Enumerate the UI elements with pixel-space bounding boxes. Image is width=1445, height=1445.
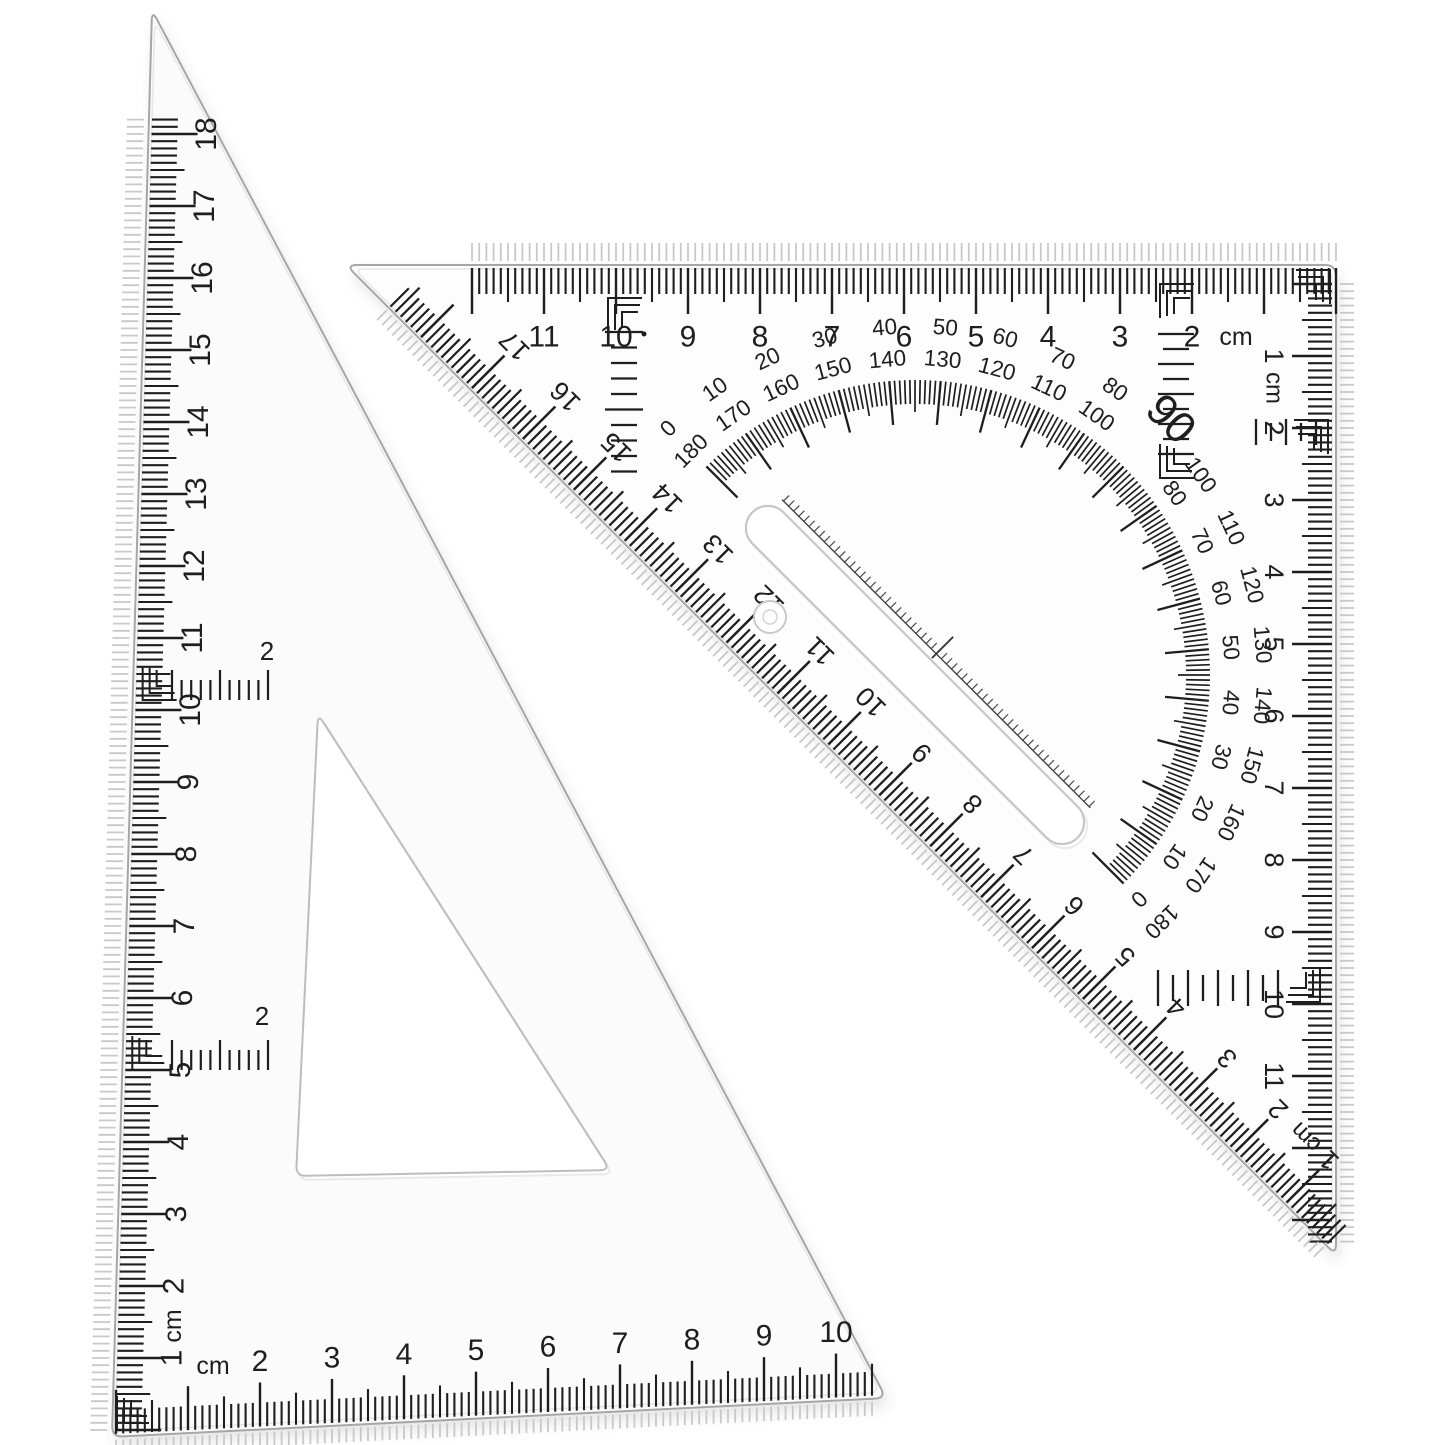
tick-ghost (586, 519, 596, 529)
tick-ghost (479, 412, 489, 422)
tick-ghost (759, 692, 769, 702)
tick-ghost (784, 717, 794, 727)
tick-ghost (820, 753, 830, 763)
top-scale-number: 3 (1112, 321, 1129, 354)
tick-ghost (1003, 936, 1013, 946)
tick-ghost (453, 387, 463, 397)
tick-ghost (540, 473, 550, 483)
tick-ghost (810, 743, 820, 753)
tick-ghost (1069, 1003, 1079, 1013)
tick-ghost (484, 417, 494, 427)
hang-hole-inner (763, 610, 777, 624)
bottom-scale-number: 4 (396, 1338, 413, 1371)
right-scale-number: 9 (1259, 924, 1289, 939)
tick-ghost (774, 707, 784, 717)
tick-ghost (1166, 1099, 1176, 1109)
tick-ghost (1156, 1089, 1166, 1099)
protractor-outer-degree: 130 (1249, 625, 1277, 665)
tick-ghost (474, 407, 484, 417)
tick-ghost (723, 656, 733, 666)
tick-ghost (1019, 952, 1029, 962)
tick-ghost (642, 575, 652, 585)
tick-ghost (606, 539, 616, 549)
right-scale-number: 3 (1259, 492, 1289, 507)
tick-ghost (881, 814, 891, 824)
bottom-scale-number: 5 (468, 1334, 485, 1367)
bottom-scale-number: 10 (819, 1316, 852, 1349)
tick-ghost (917, 850, 927, 860)
tick-ghost (1059, 992, 1069, 1002)
degree-tick (905, 380, 906, 404)
tick-ghost (402, 336, 412, 346)
tick-ghost (932, 865, 942, 875)
tick-ghost (530, 463, 540, 473)
tick-ghost (1258, 1191, 1268, 1201)
tick-ghost (1237, 1171, 1247, 1181)
tick-ghost (1100, 1033, 1110, 1043)
tick-ghost (1115, 1048, 1125, 1058)
tick-ghost (494, 427, 504, 437)
bottom-scale-number: 7 (612, 1327, 629, 1360)
left-scale-number: 6 (166, 990, 199, 1007)
tick-ghost (392, 325, 402, 335)
tick-ghost (942, 875, 952, 885)
tick-ghost (993, 926, 1003, 936)
tick-ghost (1008, 941, 1018, 951)
tick-ghost (1161, 1094, 1171, 1104)
left-scale-number: 2 (158, 1278, 191, 1295)
protractor-inner-degree: 40 (1217, 689, 1244, 716)
tick-ghost (1034, 967, 1044, 977)
tick-ghost (433, 366, 443, 376)
left-scale-number: 3 (160, 1206, 193, 1223)
protractor-inner-degree: 140 (868, 345, 908, 373)
tick-ghost (682, 616, 692, 626)
tick-ghost (998, 931, 1008, 941)
tick-ghost (535, 468, 545, 478)
tick-ghost (973, 906, 983, 916)
tick-ghost (499, 432, 509, 442)
tick-ghost (1120, 1053, 1130, 1063)
left-scale-number: 17 (188, 189, 221, 222)
tick-ghost (509, 443, 519, 453)
bottom-scale-number: 3 (324, 1341, 341, 1374)
tick-ghost (693, 626, 703, 636)
tick-ghost (443, 376, 453, 386)
tick-ghost (764, 697, 774, 707)
tick-ghost (688, 621, 698, 631)
right-scale-number: 1 (1259, 348, 1289, 363)
tick-ghost (1075, 1008, 1085, 1018)
tick-ghost (1151, 1084, 1161, 1094)
top-scale-number: 9 (680, 321, 697, 354)
right-scale-number: 8 (1259, 852, 1289, 867)
tick-ghost (621, 555, 631, 565)
tick-ghost (922, 855, 932, 865)
tick-ghost (570, 504, 580, 514)
tick-ghost (805, 738, 815, 748)
tick-ghost (1288, 1221, 1298, 1231)
tick-ghost (1049, 982, 1059, 992)
tick-ghost (901, 835, 911, 845)
right-scale-number: 2 (1259, 420, 1289, 435)
tick-ghost (657, 590, 667, 600)
bottom-scale-number: 2 (252, 1345, 269, 1378)
protractor-outer-degree: 50 (932, 314, 959, 341)
tick-ghost (728, 661, 738, 671)
tick-ghost (1013, 947, 1023, 957)
tick-ghost (1283, 1216, 1293, 1226)
tick-ghost (1146, 1079, 1156, 1089)
left-triangle-ruler: 123456789101112131415161718cm2345678910c… (90, 15, 882, 1445)
tick-ghost (1044, 977, 1054, 987)
tick-ghost (652, 585, 662, 595)
tick-ghost (1299, 1232, 1309, 1242)
tick-ghost (1064, 997, 1074, 1007)
tick-ghost (739, 672, 749, 682)
protractor-inner-degree: 50 (1217, 634, 1244, 661)
tick-ghost (871, 804, 881, 814)
tick-ghost (1187, 1120, 1197, 1130)
tick-ghost (576, 509, 586, 519)
tick-ghost (769, 702, 779, 712)
tick-ghost (1217, 1150, 1227, 1160)
tick-ghost (413, 346, 423, 356)
tick-ghost (1131, 1064, 1141, 1074)
tick-ghost (856, 789, 866, 799)
tick-ghost (616, 549, 626, 559)
tick-ghost (1029, 962, 1039, 972)
right-scale-unit: cm (1261, 372, 1288, 404)
tick-ghost (988, 921, 998, 931)
tick-ghost (458, 392, 468, 402)
tick-ghost (1222, 1155, 1232, 1165)
tick-ghost (1125, 1059, 1135, 1069)
left-scale-number: 11 (176, 622, 209, 653)
tick-ghost (525, 458, 535, 468)
tick-ghost (677, 611, 687, 621)
tick-ghost (489, 422, 499, 432)
right-scale-number: 7 (1259, 780, 1289, 795)
aux-label: 2 (260, 636, 274, 666)
top-scale-number: 5 (968, 321, 985, 354)
bottom-scale-number: 9 (756, 1320, 773, 1353)
tick-ghost (596, 529, 606, 539)
tick-ghost (1090, 1023, 1100, 1033)
left-scale-number: 12 (178, 549, 211, 582)
tick-ghost (825, 758, 835, 768)
left-scale-number: 8 (170, 846, 203, 863)
left-scale-number: 18 (190, 117, 223, 150)
set-squares-scene: 123456789101112131415161718cm2345678910c… (0, 0, 1445, 1445)
tick-ghost (591, 524, 601, 534)
tick-ghost (1197, 1130, 1207, 1140)
tick-ghost (912, 845, 922, 855)
tick-ghost (815, 748, 825, 758)
tick-ghost (1207, 1140, 1217, 1150)
tick-ghost (611, 544, 621, 554)
tick-ghost (448, 381, 458, 391)
degree-tick (924, 380, 925, 404)
tick-ghost (896, 829, 906, 839)
tick-ghost (565, 499, 575, 509)
tick-ghost (983, 916, 993, 926)
left-scale-number: 7 (168, 918, 201, 935)
aux-label: 2 (255, 1001, 269, 1031)
tick-ghost (1095, 1028, 1105, 1038)
tick-ghost (1141, 1074, 1151, 1084)
tick-ghost (876, 809, 886, 819)
tick-ghost (555, 488, 565, 498)
tick-ghost (632, 565, 642, 575)
tick-ghost (672, 605, 682, 615)
tick-ghost (851, 784, 861, 794)
tick-ghost (1054, 987, 1064, 997)
left-scale-unit: cm (159, 1309, 187, 1342)
tick-ghost (1105, 1038, 1115, 1048)
tick-ghost (662, 595, 672, 605)
tick-ghost (1212, 1145, 1222, 1155)
protractor-outer-degree: 40 (871, 314, 898, 341)
tick-ghost (978, 911, 988, 921)
tick-ghost (891, 824, 901, 834)
tick-ghost (408, 341, 418, 351)
tick-ghost (464, 397, 474, 407)
tick-ghost (1202, 1135, 1212, 1145)
tick-ghost (637, 570, 647, 580)
tick-ghost (968, 901, 978, 911)
tick-ghost (927, 860, 937, 870)
tick-ghost (861, 794, 871, 804)
photo-of-two-set-squares: 123456789101112131415161718cm2345678910c… (0, 0, 1445, 1445)
left-triangle-body (112, 15, 882, 1436)
tick-ghost (1181, 1115, 1191, 1125)
tick-ghost (937, 870, 947, 880)
tick-ghost (387, 320, 397, 330)
left-scale-number: 4 (162, 1134, 195, 1151)
tick-ghost (963, 896, 973, 906)
tick-ghost (1273, 1206, 1283, 1216)
tick-ghost (698, 631, 708, 641)
tick-ghost (418, 351, 428, 361)
tick-ghost (779, 712, 789, 722)
right-scale-number: 11 (1259, 1062, 1289, 1090)
tick-ghost (601, 534, 611, 544)
tick-ghost (835, 768, 845, 778)
degree-tick (1186, 684, 1210, 685)
tick-ghost (1232, 1165, 1242, 1175)
tick-ghost (1248, 1181, 1258, 1191)
tick-ghost (545, 478, 555, 488)
tick-ghost (1278, 1211, 1288, 1221)
tick-ghost (744, 677, 754, 687)
tick-ghost (1227, 1160, 1237, 1170)
tick-ghost (514, 448, 524, 458)
left-scale-number: 1 (156, 1350, 189, 1367)
tick-ghost (1243, 1176, 1253, 1186)
tick-ghost (795, 728, 805, 738)
tick-ghost (1024, 957, 1034, 967)
tick-ghost (789, 723, 799, 733)
tick-ghost (708, 641, 718, 651)
tick-ghost (667, 600, 677, 610)
tick-ghost (749, 682, 759, 692)
tick-ghost (1136, 1069, 1146, 1079)
tick-ghost (957, 891, 967, 901)
tick-ghost (1253, 1186, 1263, 1196)
tick-ghost (469, 402, 479, 412)
protractor-outer-degree: 140 (1249, 686, 1277, 726)
tick-ghost (866, 799, 876, 809)
tick-ghost (1293, 1227, 1303, 1237)
tick-ghost (1171, 1104, 1181, 1114)
tick-ghost (647, 580, 657, 590)
left-scale-number: 13 (180, 477, 213, 510)
tick-ghost (800, 733, 810, 743)
tick-ghost (504, 437, 514, 447)
left-scale-number: 9 (172, 774, 205, 791)
top-scale-unit: cm (1219, 323, 1252, 351)
tick-ghost (1080, 1013, 1090, 1023)
tick-ghost (840, 773, 850, 783)
tick-ghost (438, 371, 448, 381)
tick-ghost (397, 331, 407, 341)
tick-ghost (560, 493, 570, 503)
left-scale-number: 16 (186, 261, 219, 294)
tick-ghost (581, 514, 591, 524)
bottom-scale-unit: cm (196, 1352, 229, 1380)
tick-ghost (1039, 972, 1049, 982)
tick-ghost (886, 819, 896, 829)
tick-ghost (520, 453, 530, 463)
bottom-scale-number: 6 (540, 1331, 557, 1364)
bottom-scale-number: 8 (684, 1323, 701, 1356)
protractor-inner-degree: 130 (923, 345, 963, 373)
tick-ghost (382, 315, 392, 325)
tick-ghost (907, 840, 917, 850)
tick-ghost (550, 483, 560, 493)
tick-ghost (703, 636, 713, 646)
left-scale-number: 14 (182, 405, 215, 438)
tick-ghost (1176, 1109, 1186, 1119)
tick-ghost (1085, 1018, 1095, 1028)
tick-ghost (423, 356, 433, 366)
tick-ghost (1110, 1043, 1120, 1053)
tick-ghost (754, 687, 764, 697)
tick-ghost (845, 779, 855, 789)
tick-ghost (718, 651, 728, 661)
tick-ghost (626, 560, 636, 570)
tick-ghost (713, 646, 723, 656)
tick-ghost (947, 880, 957, 890)
tick-ghost (1309, 1242, 1319, 1252)
tick-ghost (1192, 1125, 1202, 1135)
tick-ghost (1314, 1247, 1324, 1257)
tick-ghost (1268, 1201, 1278, 1211)
left-scale-number: 15 (184, 333, 217, 366)
tick-ghost (377, 310, 387, 320)
tick-ghost (428, 361, 438, 371)
tick-ghost (733, 667, 743, 677)
tick-ghost (1263, 1196, 1273, 1206)
tick-ghost (830, 763, 840, 773)
degree-tick (1186, 665, 1210, 666)
tick-ghost (952, 885, 962, 895)
